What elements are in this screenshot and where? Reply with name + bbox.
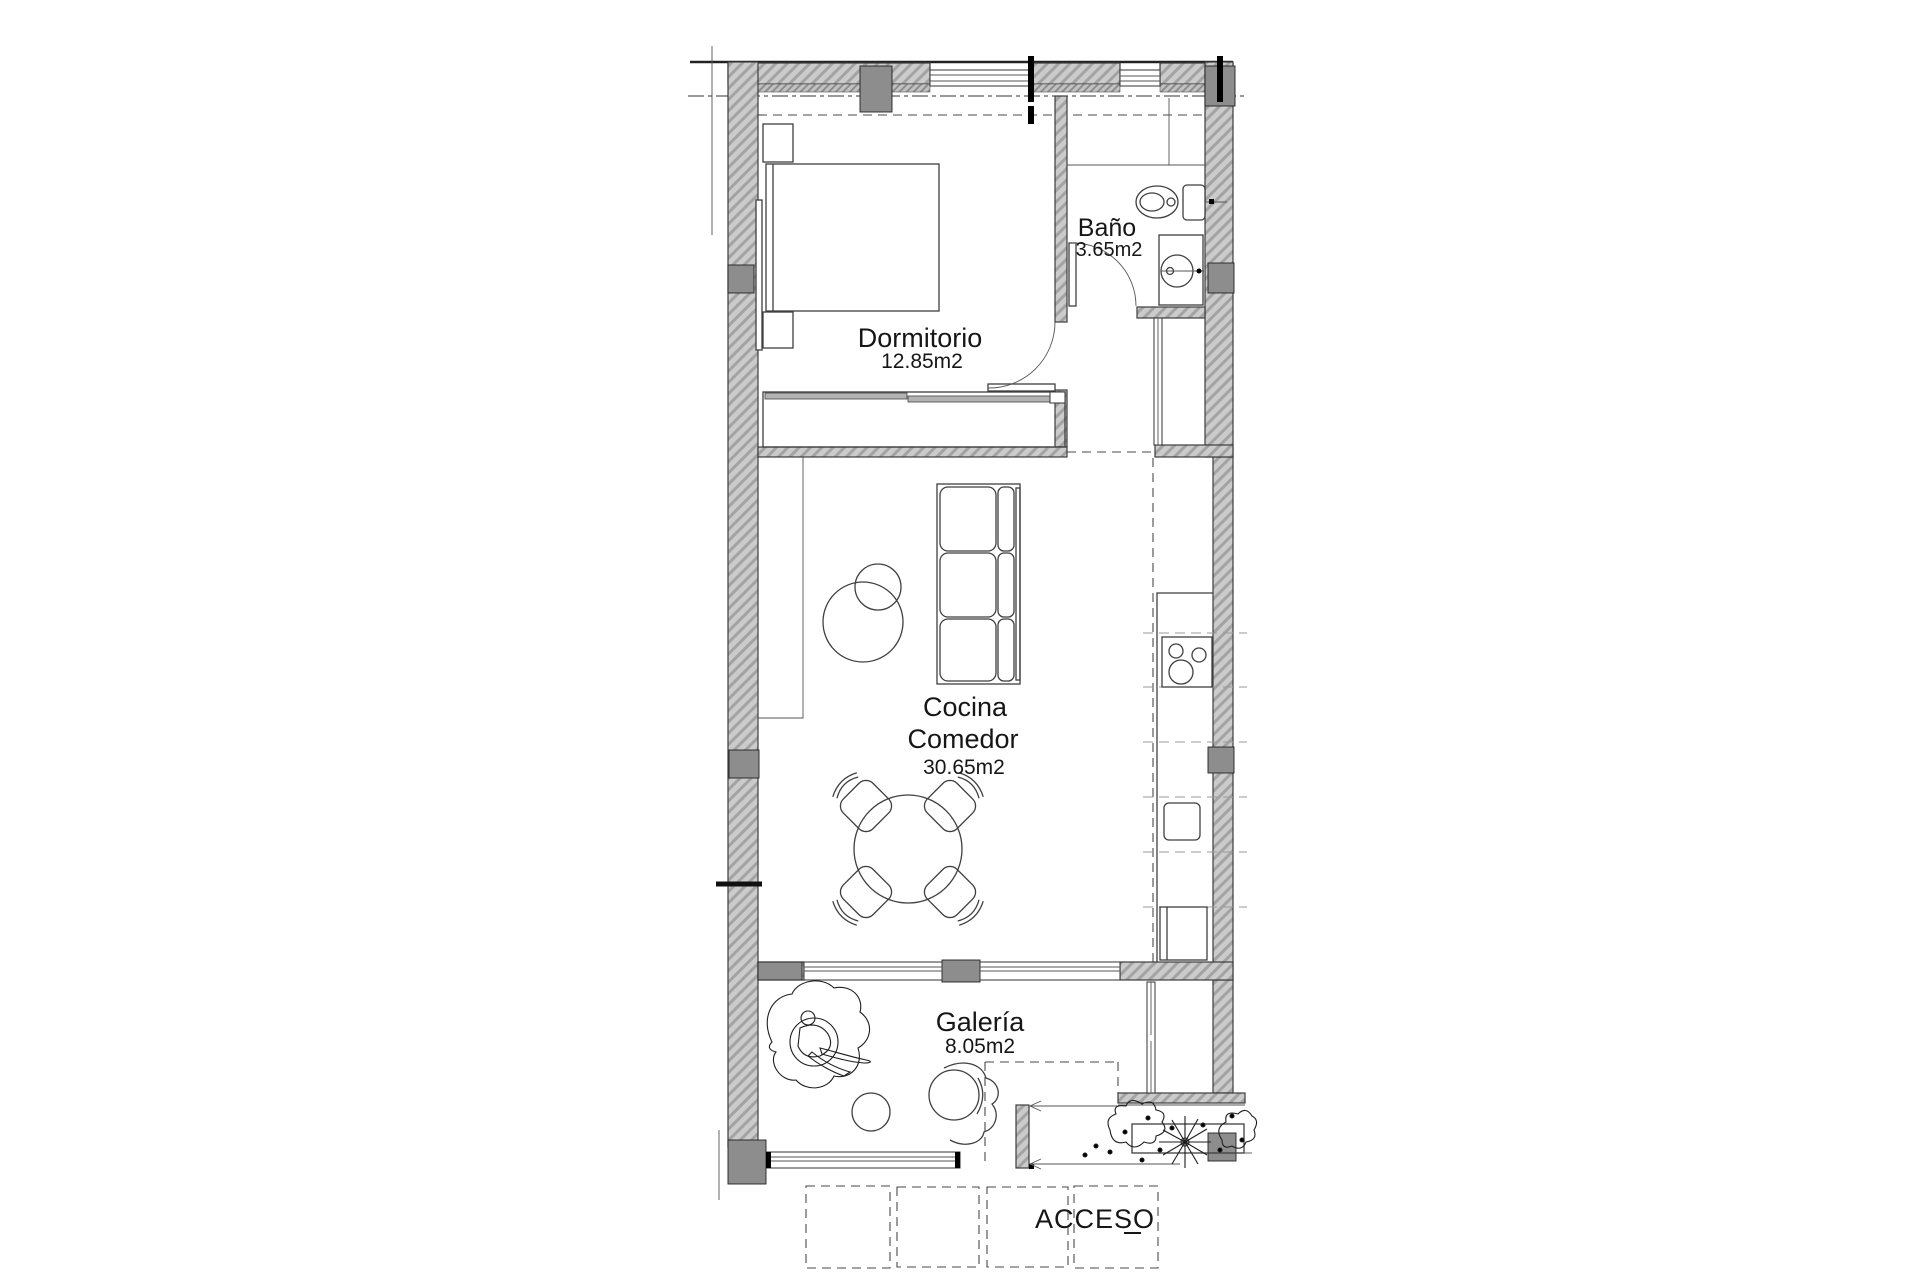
nightstand: [763, 124, 793, 162]
kitchen-label-line2: Comedor: [907, 724, 1018, 754]
plant: [767, 981, 870, 1088]
fridge: [1160, 907, 1207, 960]
dining-chair: [920, 862, 989, 931]
radiator: [756, 200, 762, 350]
bathroom-area: 3.65m2: [1076, 239, 1143, 261]
counter-outline: [758, 457, 803, 718]
kitchen-sink: [1164, 803, 1200, 840]
armchair: [929, 1063, 998, 1144]
nightstand: [763, 312, 793, 348]
gallery-window: [766, 1152, 960, 1168]
bathroom-label: Baño: [1078, 214, 1136, 242]
entrance-area: [806, 1100, 1257, 1268]
gallery-area: 8.05m2: [945, 1035, 1015, 1058]
hob: [1162, 637, 1212, 687]
porch-partition: [1147, 982, 1155, 1093]
bedroom-area: 12.85m2: [881, 350, 963, 373]
kitchen-label-line1: Cocina: [923, 692, 1008, 722]
bed: [766, 164, 939, 311]
dining-chair: [827, 767, 896, 836]
dining-set: [827, 767, 989, 931]
floor-plan-page: Dormitorio 12.85m2 Baño 3.65m2 Cocina Co…: [0, 0, 1920, 1280]
coffee-table: [823, 564, 903, 662]
bedroom-window: [930, 70, 1032, 86]
washbasin: [1159, 235, 1204, 305]
bedroom-door: [988, 322, 1055, 391]
wardrobe: [763, 392, 1065, 447]
bathroom-fittings: [1067, 98, 1227, 305]
kitchen-area: 30.65m2: [923, 756, 1005, 779]
bathroom-window: [1120, 70, 1160, 86]
sofa: [937, 484, 1020, 684]
entrance-label: ACCESO: [1035, 1204, 1155, 1234]
floor-plan-drawing: Dormitorio 12.85m2 Baño 3.65m2 Cocina Co…: [0, 0, 1920, 1280]
dining-table: [854, 795, 962, 903]
gallery-label: Galería: [936, 1007, 1026, 1037]
dining-chair: [827, 862, 896, 931]
bedroom-label: Dormitorio: [858, 323, 983, 353]
side-table: [852, 1093, 890, 1131]
patio-window: [1154, 318, 1162, 445]
